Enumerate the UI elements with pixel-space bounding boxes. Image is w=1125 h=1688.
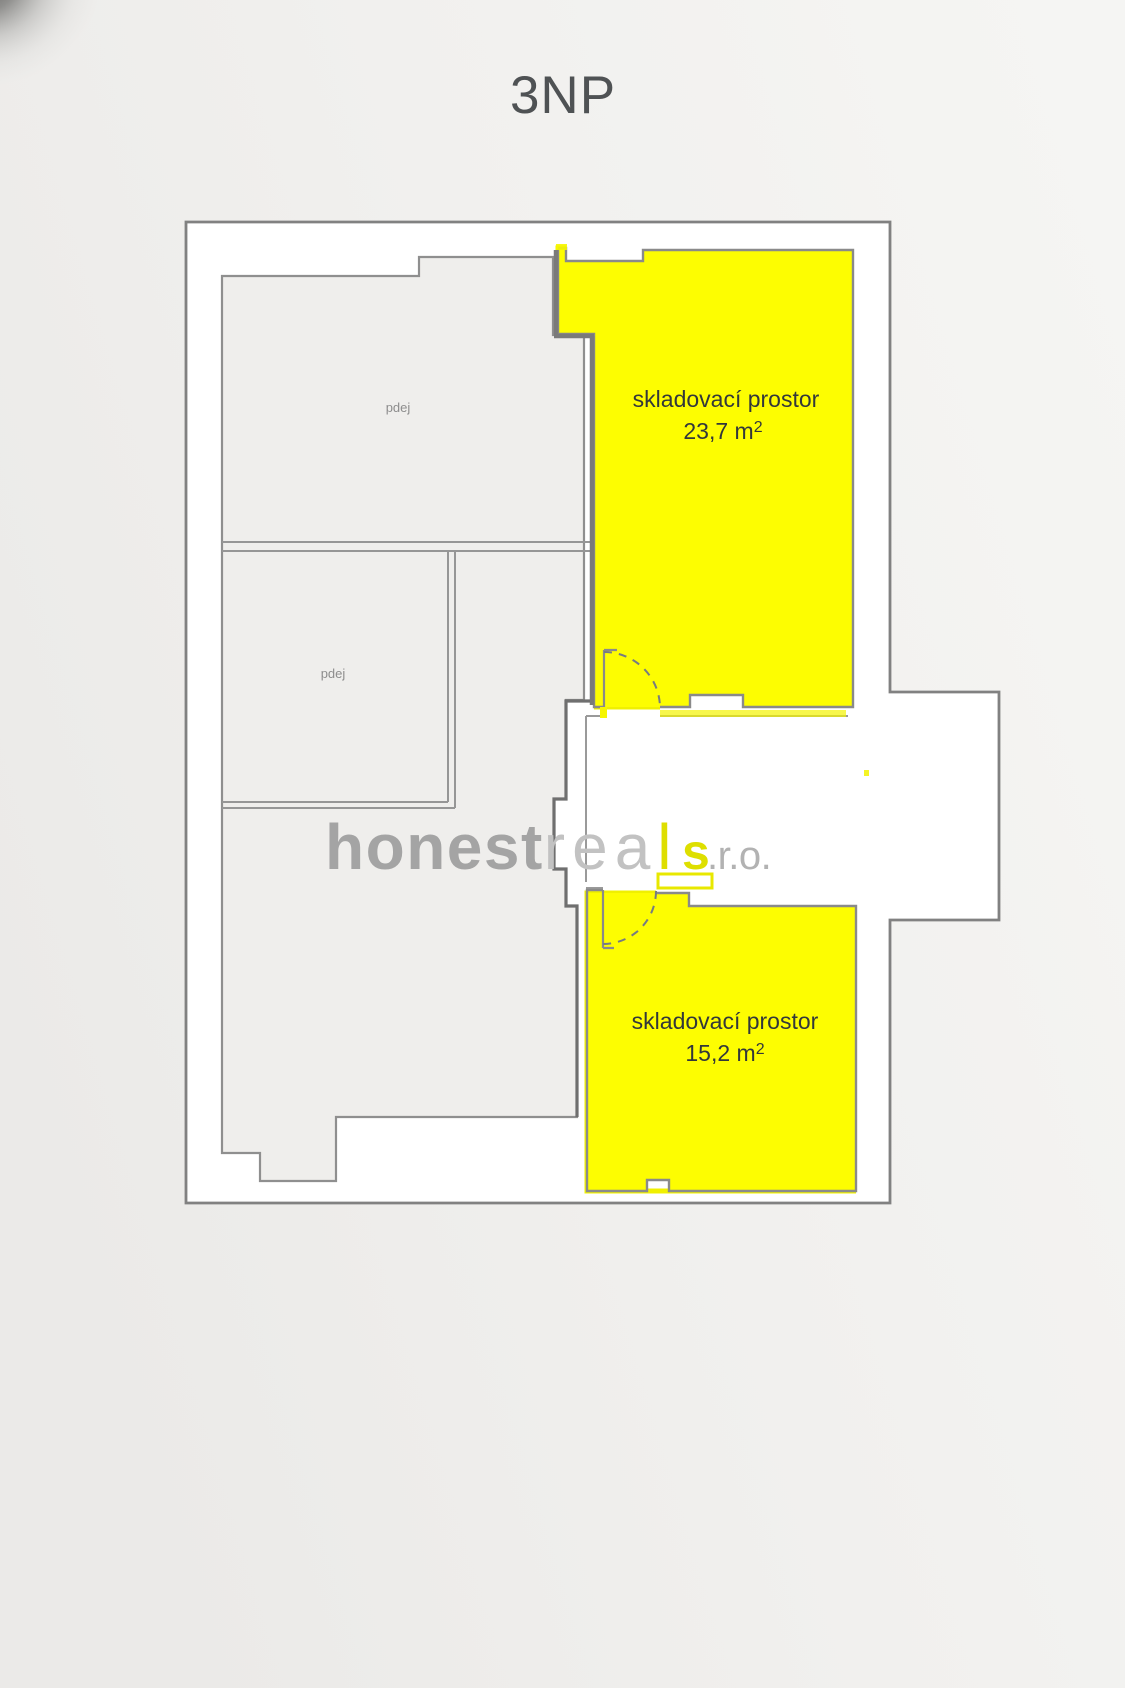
svg-text:.r.o.: .r.o. [707, 834, 771, 878]
svg-text:honestreal: honestreal [325, 811, 672, 883]
svg-text:pdej: pdej [386, 400, 411, 415]
svg-text:s: s [682, 824, 710, 880]
svg-text:15,2 m2: 15,2 m2 [685, 1040, 764, 1066]
svg-text:skladovací prostor: skladovací prostor [632, 1008, 819, 1034]
svg-text:3NP: 3NP [510, 66, 616, 125]
svg-text:skladovací prostor: skladovací prostor [633, 386, 820, 412]
svg-text:pdej: pdej [321, 666, 346, 681]
svg-text:23,7 m2: 23,7 m2 [683, 418, 762, 444]
